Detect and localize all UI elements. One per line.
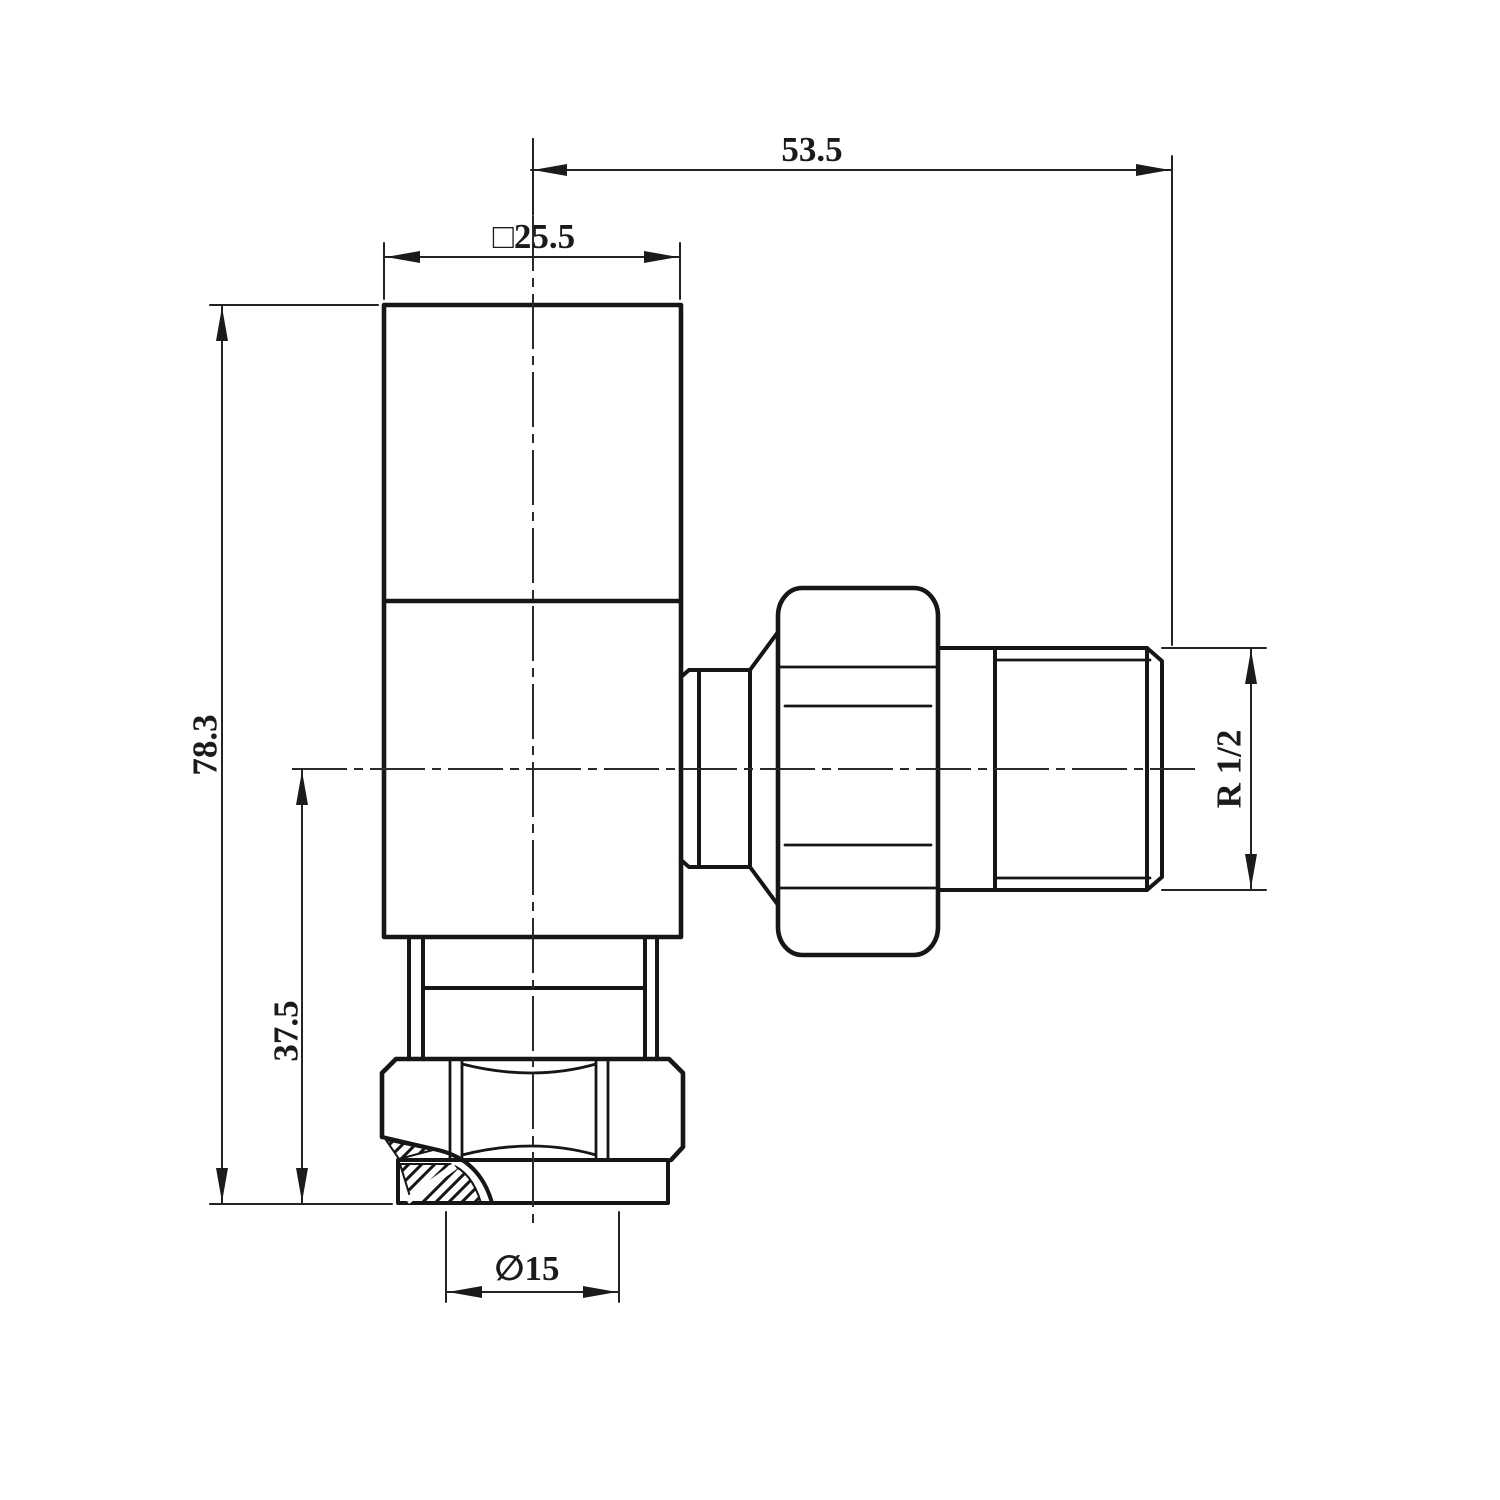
dim-head-width-label: □25.5 bbox=[493, 217, 575, 256]
dim-outlet-thread-label: R 1/2 bbox=[1210, 730, 1249, 809]
dim-overall-height-label: 78.3 bbox=[186, 714, 225, 775]
radiator-valve-technical-drawing: 53.5 □25.5 78.3 37.5 R 1/2 ∅15 bbox=[0, 0, 1500, 1500]
dim-inlet-diameter-label: ∅15 bbox=[495, 1249, 560, 1288]
technical-drawing-page: 53.5 □25.5 78.3 37.5 R 1/2 ∅15 bbox=[0, 0, 1500, 1500]
dim-lower-height-label: 37.5 bbox=[267, 1000, 306, 1061]
dim-top-width-label: 53.5 bbox=[781, 130, 842, 169]
